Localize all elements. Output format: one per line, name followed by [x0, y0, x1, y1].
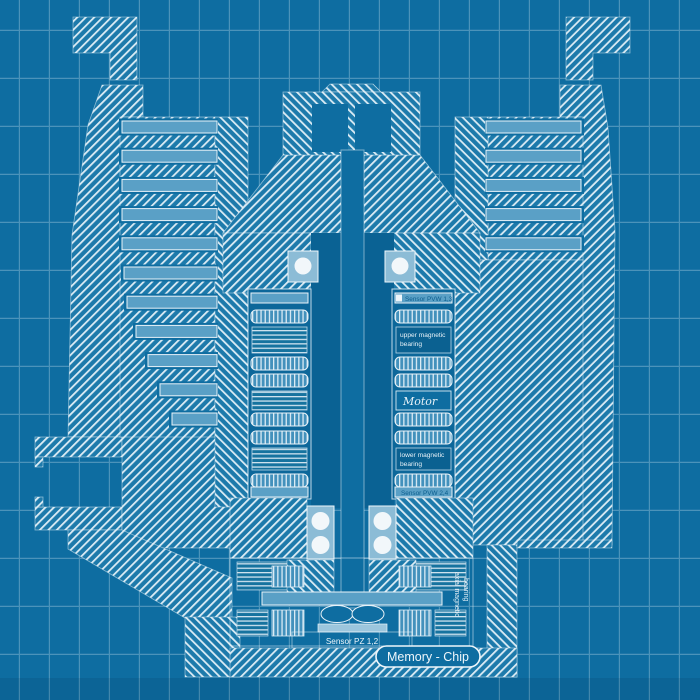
- stator-column-left: [248, 289, 311, 499]
- coil-winding-bar: [395, 474, 452, 487]
- ball-bearing: [374, 512, 392, 530]
- memory-chip-callout: Memory - Chip: [376, 646, 480, 667]
- rotor-blade: [122, 238, 217, 250]
- rotor-bell-wall-left: [215, 117, 248, 507]
- coil-block: [399, 566, 431, 587]
- coil-block: [272, 566, 304, 587]
- lower-bearing-label-line2: bearing: [400, 461, 422, 468]
- coil-winding-bar: [395, 374, 452, 387]
- upper-magnetic-bearing-box: [396, 327, 451, 353]
- sensor-pz-bar: [318, 624, 387, 632]
- rotor-blade: [160, 384, 217, 396]
- rotor-blade: [136, 325, 217, 337]
- ball-bearing: [374, 536, 392, 554]
- rotor-blade: [486, 238, 581, 250]
- ball-bearing: [312, 536, 330, 554]
- coil-winding-bar: [251, 431, 308, 444]
- axial-rotor-ellipse: [321, 606, 353, 623]
- rotor-blade: [122, 179, 217, 191]
- memory-chip-label: Memory - Chip: [387, 650, 469, 664]
- rotor-blade: [486, 150, 581, 162]
- axial-label-line2: bearing: [462, 578, 469, 601]
- axial-rotor-ellipse: [352, 606, 384, 623]
- rotor-blade: [486, 121, 581, 133]
- blueprint-canvas: .h{stroke:#e8f2f8;stroke-opacity:.55;str…: [0, 0, 700, 700]
- stator-column-right: Sensor PVW 1,3 upper magnetic bearing Mo…: [392, 289, 455, 499]
- lamination-small-right: [435, 610, 466, 636]
- lower-bearing-label-line1: lower magnetic: [400, 452, 445, 459]
- rotor-cap: [283, 84, 420, 155]
- rotor-blade: [124, 267, 217, 279]
- upper-bearing-label-line2: bearing: [400, 341, 422, 348]
- coil-winding-bar: [395, 431, 452, 444]
- base-band-right: [517, 540, 612, 548]
- rotor-blade: [172, 413, 217, 425]
- bottom-shade-band: [0, 678, 700, 700]
- rotor-blade: [486, 179, 581, 191]
- ball-bearing: [312, 512, 330, 530]
- coil-winding-bar: [251, 413, 308, 426]
- rotor-blade: [127, 296, 217, 308]
- axial-label-line1: axial magnetic: [453, 572, 460, 617]
- rotor-blade: [148, 355, 217, 367]
- rotor-blade: [122, 121, 217, 133]
- rotor-blade: [122, 209, 217, 221]
- sensor-pvw-top-label: Sensor PVW 1,3: [405, 296, 453, 303]
- lamination-small-left: [237, 610, 268, 636]
- cap-window-right: [355, 104, 391, 152]
- rotor-blade: [486, 209, 581, 221]
- coil-winding-bar: [251, 374, 308, 387]
- motor-label: Motor: [402, 395, 438, 408]
- rotor-shaft: [341, 150, 364, 608]
- rotor-blade: [122, 150, 217, 162]
- coil-winding-bar: [251, 310, 308, 323]
- coil-winding-bar: [395, 413, 452, 426]
- sensor-pvw-bottom-label: Sensor PVW 2,4: [401, 490, 449, 497]
- ball-bearing: [392, 258, 409, 275]
- pump-diagram: .h{stroke:#e8f2f8;stroke-opacity:.55;str…: [0, 0, 700, 700]
- upper-bearing-label-line1: upper magnetic: [400, 332, 446, 339]
- axial-bearing-disc: [262, 592, 442, 605]
- coil-winding-bar: [395, 310, 452, 323]
- cap-window-left: [312, 104, 348, 152]
- solid-wall-right: [455, 260, 583, 545]
- ball-bearing: [295, 258, 312, 275]
- coil-winding-bar: [251, 474, 308, 487]
- coil-winding-bar: [251, 357, 308, 370]
- sensor-pz-label: Sensor PZ 1,2: [326, 637, 379, 646]
- coil-winding-bar: [395, 357, 452, 370]
